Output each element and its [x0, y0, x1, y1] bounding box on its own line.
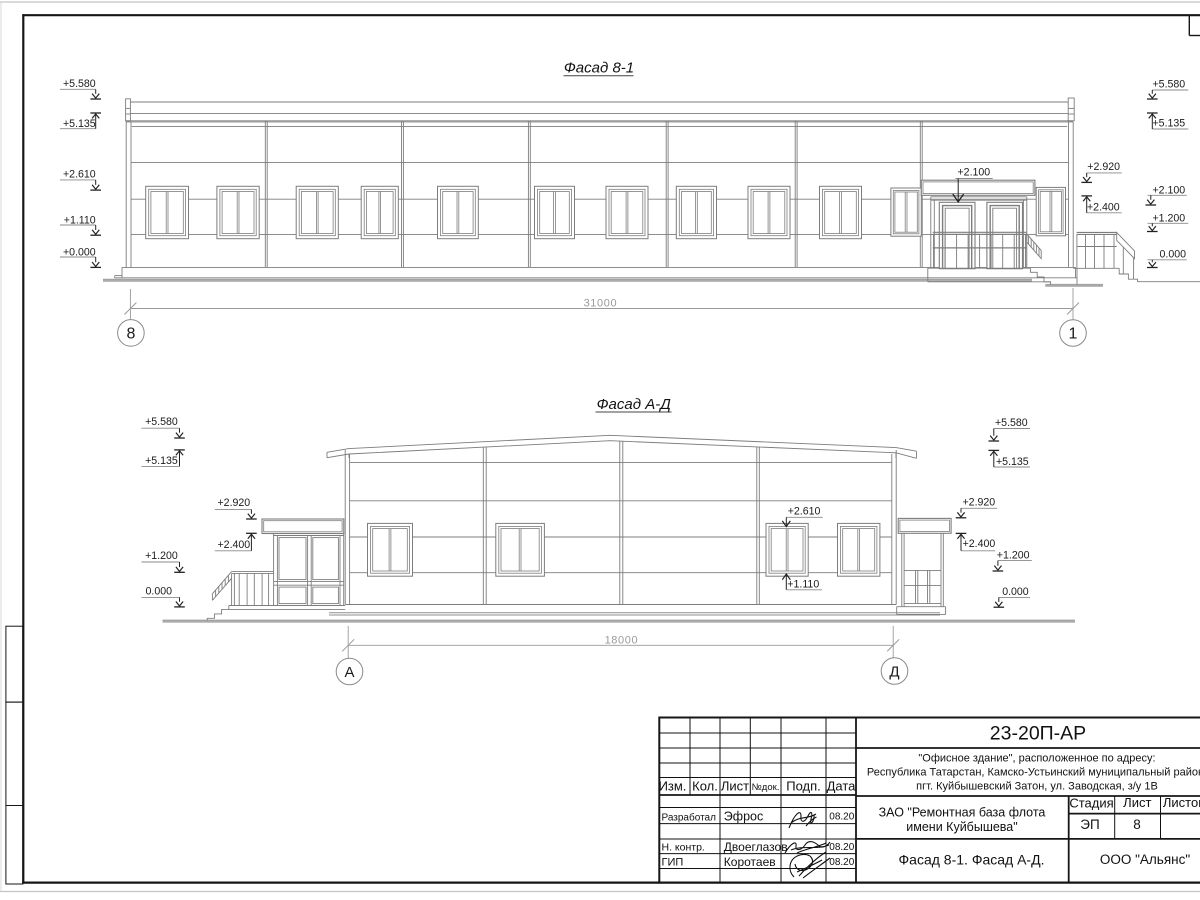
svg-text:18000: 18000: [605, 635, 639, 647]
svg-text:ЭП: ЭП: [1080, 817, 1099, 832]
svg-text:+2.920: +2.920: [962, 497, 995, 509]
svg-text:пгт. Куйбышевский Затон, ул. З: пгт. Куйбышевский Затон, ул. Заводская, …: [916, 780, 1158, 792]
svg-text:+5.580: +5.580: [63, 78, 96, 90]
svg-text:+2.100: +2.100: [1153, 184, 1186, 196]
svg-text:Изм.: Изм.: [659, 779, 687, 794]
svg-text:+5.135: +5.135: [1153, 117, 1186, 129]
svg-text:+2.610: +2.610: [788, 506, 821, 518]
svg-text:0.000: 0.000: [145, 585, 172, 597]
svg-text:Д: Д: [889, 664, 899, 681]
svg-text:+2.610: +2.610: [63, 168, 96, 180]
svg-text:+5.135: +5.135: [145, 455, 178, 467]
svg-text:Фасад 8-1: Фасад 8-1: [564, 60, 634, 77]
svg-text:+5.135: +5.135: [996, 456, 1029, 468]
svg-text:Республика Татарстан, Камско-У: Республика Татарстан, Камско-Устьинский …: [867, 766, 1200, 778]
svg-text:+1.110: +1.110: [64, 214, 96, 226]
svg-text:Подп.: Подп.: [786, 779, 821, 794]
svg-text:Фасад 8-1. Фасад А-Д.: Фасад 8-1. Фасад А-Д.: [899, 852, 1045, 868]
svg-text:Н. контр.: Н. контр.: [662, 842, 705, 854]
svg-text:№док.: №док.: [752, 782, 780, 793]
svg-text:Коротаев: Коротаев: [724, 855, 776, 869]
svg-text:31000: 31000: [584, 298, 618, 310]
svg-text:23-20П-АР: 23-20П-АР: [990, 723, 1086, 745]
svg-text:8: 8: [126, 326, 135, 343]
svg-text:А: А: [344, 664, 354, 681]
svg-text:+2.400: +2.400: [217, 539, 250, 551]
svg-text:"Офисное здание", расположенно: "Офисное здание", расположенное по адрес…: [918, 752, 1155, 764]
svg-text:+1.200: +1.200: [997, 549, 1030, 561]
svg-text:+5.580: +5.580: [1153, 78, 1186, 90]
svg-text:08.20: 08.20: [829, 857, 854, 868]
svg-text:08.20: 08.20: [829, 842, 854, 853]
svg-text:0.000: 0.000: [1002, 586, 1029, 598]
svg-text:+2.920: +2.920: [1087, 161, 1120, 173]
svg-text:ООО "Альянс": ООО "Альянс": [1100, 852, 1190, 867]
svg-text:Эфрос: Эфрос: [724, 810, 763, 824]
svg-text:+2.400: +2.400: [963, 538, 996, 550]
svg-text:0.000: 0.000: [1160, 248, 1187, 260]
svg-text:ЗАО "Ремонтная база флота: ЗАО "Ремонтная база флота: [879, 806, 1046, 820]
svg-text:Листов: Листов: [1163, 795, 1200, 810]
svg-text:Двоеглазов: Двоеглазов: [724, 840, 788, 854]
svg-text:Кол.: Кол.: [692, 779, 718, 794]
svg-text:+5.580: +5.580: [145, 416, 178, 428]
svg-text:+5.580: +5.580: [995, 417, 1028, 429]
svg-text:1: 1: [1069, 326, 1078, 343]
svg-text:+1.200: +1.200: [145, 550, 178, 562]
svg-text:Лист: Лист: [1123, 795, 1151, 810]
svg-text:Дата: Дата: [827, 779, 857, 794]
svg-text:+1.200: +1.200: [1153, 212, 1186, 224]
svg-text:8: 8: [1133, 817, 1141, 832]
svg-text:имени Куйбышева": имени Куйбышева": [906, 820, 1017, 834]
svg-text:Разработал: Разработал: [662, 811, 717, 823]
svg-text:Стадия: Стадия: [1069, 796, 1113, 811]
svg-text:Фасад А-Д: Фасад А-Д: [597, 396, 672, 413]
svg-text:+1.110: +1.110: [787, 578, 819, 590]
svg-text:ГИП: ГИП: [662, 857, 684, 869]
svg-text:+5.135: +5.135: [63, 118, 96, 130]
svg-text:Лист: Лист: [721, 779, 749, 794]
svg-text:+2.920: +2.920: [217, 497, 250, 509]
svg-text:08.20: 08.20: [829, 811, 854, 822]
svg-text:+2.100: +2.100: [957, 167, 990, 179]
svg-text:+2.400: +2.400: [1087, 202, 1120, 214]
